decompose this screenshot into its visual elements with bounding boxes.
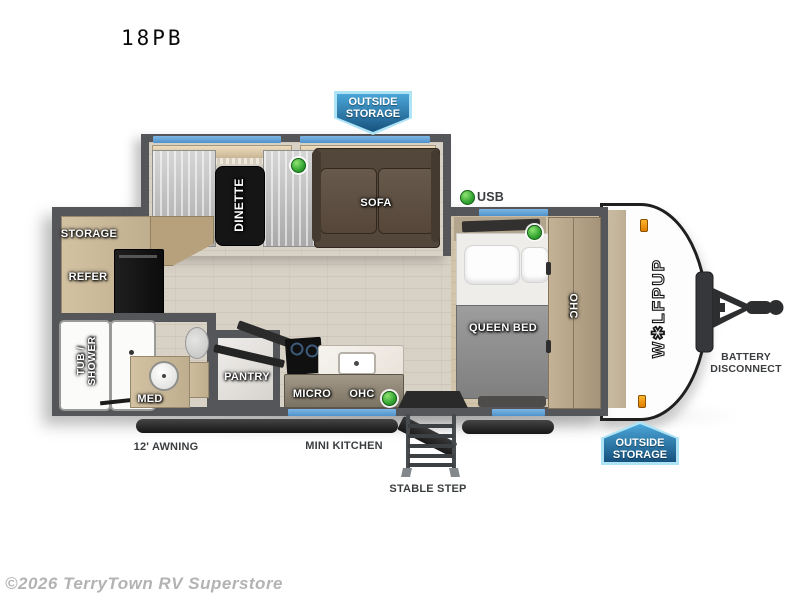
- refrigerator: [114, 249, 164, 315]
- battery-disconnect-label: BATTERY DISCONNECT: [710, 351, 781, 375]
- dinette-label: DINETTE: [232, 178, 246, 231]
- refer-label: REFER: [69, 271, 108, 283]
- awning-tube-left: [136, 419, 398, 433]
- green-dot-dinette: [291, 158, 306, 173]
- shower-drain: [129, 350, 134, 355]
- bed-foot-bench: [478, 396, 546, 407]
- badge-text: OUTSIDE STORAGE: [334, 96, 412, 120]
- ohc-bedroom-label: OHC: [567, 293, 579, 318]
- awning-label: 12' AWNING: [134, 441, 199, 453]
- tub-shower-label: TUB / SHOWER: [76, 336, 98, 385]
- wardrobe-handle-bottom: [546, 340, 551, 353]
- queen-bed-label: QUEEN BED: [469, 322, 537, 334]
- badge-bottom-line2: STORAGE: [601, 449, 679, 461]
- sofa-label: SOFA: [360, 197, 391, 209]
- battery-disconnect-line2: DISCONNECT: [710, 363, 781, 375]
- step-rung-3: [408, 444, 454, 448]
- floorplan: W✱LFPUP BATTERY DISCONNECT DINETTE SOFA …: [0, 0, 800, 600]
- green-dot-usb: [460, 190, 475, 205]
- step-rung-4: [408, 454, 454, 458]
- wardrobe-handle-top: [546, 262, 551, 275]
- bedroom-window-top: [479, 209, 548, 216]
- marker-light-top: [640, 219, 648, 232]
- slideout-window-right: [300, 136, 430, 143]
- faucet: [354, 361, 359, 366]
- awning-tube-right: [462, 420, 554, 434]
- outside-storage-badge-bottom: OUTSIDE STORAGE: [601, 421, 679, 465]
- mini-kitchen-label: MINI KITCHEN: [305, 440, 383, 452]
- bed-spread: [456, 305, 550, 399]
- step-rung-2: [408, 434, 454, 438]
- marker-light-bottom: [638, 395, 646, 408]
- slideout-window-left: [153, 136, 281, 143]
- burner-left: [290, 342, 304, 356]
- wolfpup-logo: W✱LFPUP: [649, 258, 669, 358]
- badge-top-line2: STORAGE: [334, 108, 412, 120]
- med-label: MED: [137, 393, 162, 405]
- ohc-kitchen-label: OHC: [349, 388, 374, 400]
- floorplan-title: 18PB: [121, 26, 184, 50]
- bathroom-sink: [149, 361, 179, 391]
- sofa-armrest-right: [431, 150, 440, 242]
- entry-door-threshold: [398, 391, 468, 408]
- outside-storage-badge-top: OUTSIDE STORAGE: [334, 91, 412, 135]
- bedroom-window-bottom: [492, 409, 545, 416]
- stable-step-label: STABLE STEP: [389, 483, 466, 495]
- step-rung-5: [408, 463, 454, 467]
- step-foot-right: [449, 468, 460, 477]
- watermark: ©2026 TerryTown RV Superstore: [5, 574, 283, 594]
- badge-top-line1: OUTSIDE: [334, 96, 412, 108]
- cap-interior-floor: [606, 210, 626, 408]
- step-foot-left: [401, 468, 412, 477]
- pantry-label: PANTRY: [224, 371, 270, 383]
- kitchen-window-bottom: [288, 409, 396, 416]
- kitchen-sink: [338, 352, 376, 375]
- storage-label: STORAGE: [61, 228, 117, 240]
- step-rung-1: [408, 424, 454, 428]
- sofa-armrest-left: [312, 150, 321, 242]
- toilet: [185, 327, 209, 359]
- badge-bottom-line1: OUTSIDE: [601, 437, 679, 449]
- micro-label: MICRO: [293, 388, 331, 400]
- battery-disconnect-line1: BATTERY: [710, 351, 781, 363]
- dinette-bench-right: [263, 150, 315, 247]
- tub-shower-line2: SHOWER: [87, 336, 98, 385]
- pillow-right: [521, 247, 549, 283]
- badge-text: OUTSIDE STORAGE: [601, 437, 679, 461]
- usb-label: USB: [477, 190, 504, 204]
- green-dot-bedroom: [527, 225, 542, 240]
- green-dot-kitchen: [382, 391, 397, 406]
- sink-drain: [162, 374, 166, 378]
- pillow-left: [464, 245, 520, 285]
- refrigerator-handle: [119, 255, 157, 258]
